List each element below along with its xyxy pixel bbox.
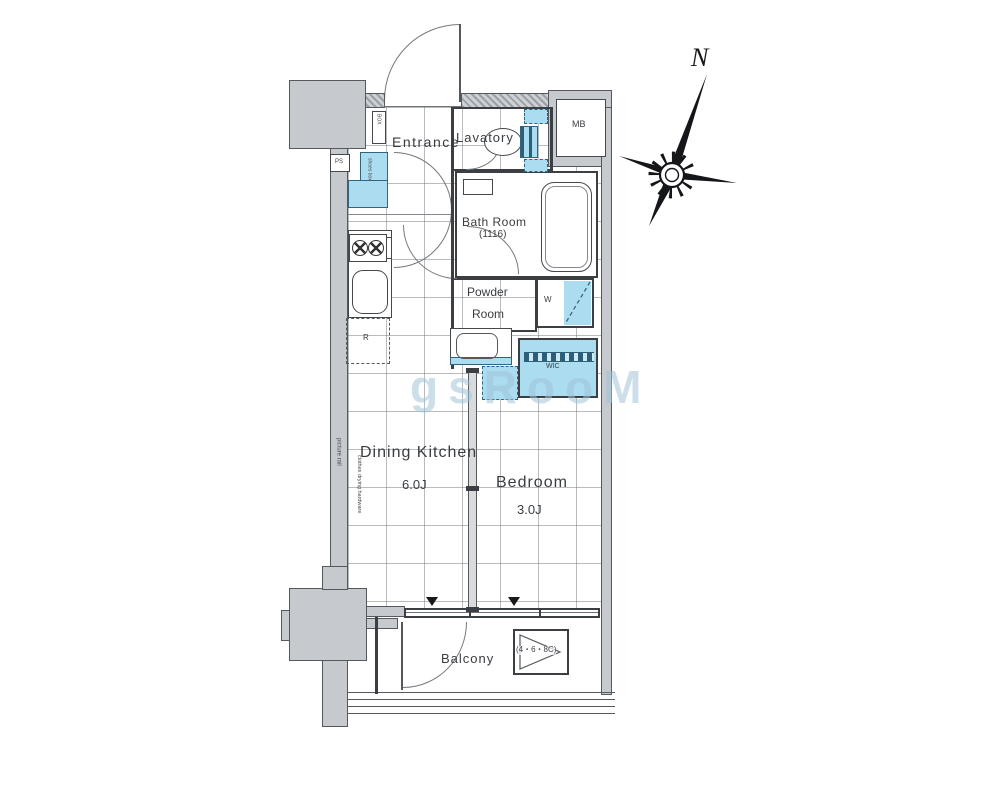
wash-basin-bowl: [456, 333, 498, 359]
window-band: [404, 608, 600, 618]
room-lavatory-label: Lavatory: [456, 131, 514, 145]
lavatory-shelf-top: [524, 109, 548, 124]
refrigerator-label: R: [363, 334, 369, 343]
door-leaf-front: [459, 24, 461, 102]
washing-machine-pan: [564, 281, 591, 325]
window-cap: [404, 608, 406, 618]
sliding-door-stop: [466, 368, 479, 373]
washer-label: W: [544, 296, 552, 305]
room-bedroom-label: Bedroom: [496, 474, 568, 492]
delivery-box-label: BOX: [375, 114, 381, 142]
shoes-box-label: shoes box: [366, 158, 372, 206]
window-mid-rail: [404, 612, 600, 613]
room-powder-label-2: Room: [472, 308, 504, 321]
clothes-drying-label: clothes drying hardware: [356, 455, 362, 565]
closet-sub: [482, 366, 518, 400]
window-cap: [469, 608, 471, 618]
escape-hatch-label: (4・6・8C): [516, 646, 556, 655]
column-bottom-left-leg: [322, 660, 348, 727]
wall-right: [601, 107, 612, 695]
bath-counter-icon: [463, 179, 493, 195]
room-powder-label-1: Powder: [467, 286, 508, 299]
wall-balcony-west: [375, 617, 378, 694]
room-bath-label: Bath Room: [462, 216, 527, 229]
room-balcony-label: Balcony: [441, 652, 494, 666]
window-cap: [598, 608, 600, 618]
window-cap: [539, 608, 541, 618]
opening-marker-icon: [426, 597, 438, 606]
floor-plan: MB WIC W R shoes box BOX PS: [0, 0, 999, 801]
wall-top-right-segment: [461, 93, 549, 108]
pipe-space-label: PS: [335, 159, 343, 166]
column-bottom-left-arm-west: [281, 610, 290, 641]
room-entrance-label: Entrance: [392, 135, 460, 150]
washer-diagonal-icon: [564, 281, 591, 325]
entrance-threshold-line: [384, 106, 461, 107]
opening-marker-icon: [508, 597, 520, 606]
wall-balcony-link: [366, 618, 398, 629]
room-dining-kitchen-size: 6.0J: [402, 478, 427, 492]
compass-rose: N: [615, 30, 775, 240]
stove-burner-icon: [368, 240, 384, 256]
column-bottom-left: [289, 588, 367, 661]
north-label: N: [690, 43, 710, 72]
meter-box-label: MB: [572, 120, 586, 130]
door-leaf-balcony: [401, 622, 403, 690]
picture-rail-label: picture rail: [335, 438, 342, 528]
walk-in-closet-label: WIC: [546, 363, 560, 371]
room-bedroom-size: 3.0J: [517, 503, 542, 517]
sliding-door-handle: [466, 486, 479, 491]
wall-lavatory-east: [550, 107, 553, 171]
stove-grill-icon: [386, 237, 392, 259]
bathtub-inner: [545, 186, 588, 268]
room-bath-size: (1116): [479, 229, 506, 240]
column-bottom-left-arm-top: [322, 566, 348, 590]
column-top-left: [289, 80, 366, 149]
stove-burner-icon: [352, 240, 368, 256]
kitchen-sink-icon: [352, 270, 388, 314]
closet-hanger-pipe: [524, 352, 594, 362]
toilet-tank-icon: [520, 126, 538, 158]
lavatory-shelf-bottom: [524, 159, 548, 172]
door-arc-front: [384, 24, 460, 100]
room-dining-kitchen-label: Dining Kitchen: [360, 444, 477, 462]
wall-left: [330, 148, 348, 601]
compass-hub: [666, 169, 679, 182]
shoes-box-upper: [360, 152, 388, 181]
balcony-railing: [335, 692, 615, 717]
